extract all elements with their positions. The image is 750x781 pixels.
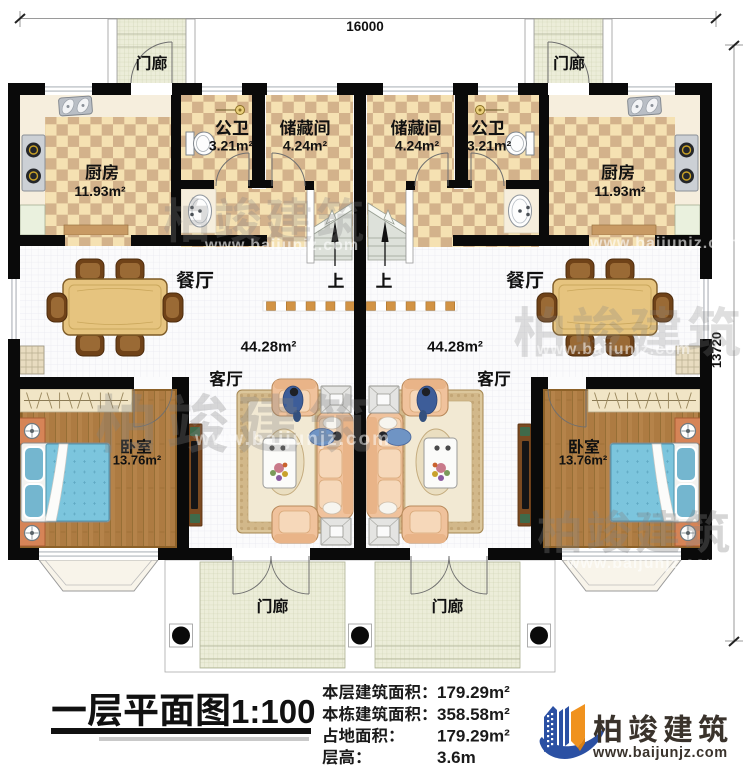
- svg-text:179.29m²: 179.29m²: [437, 683, 510, 702]
- svg-text:www.baijunjz.com: www.baijunjz.com: [589, 229, 744, 253]
- svg-text:www.baijunjz.com: www.baijunjz.com: [536, 335, 691, 359]
- svg-text:厨房: 厨房: [85, 159, 119, 184]
- svg-text:44.28m²: 44.28m²: [427, 339, 483, 356]
- svg-text:www.baijunjz.com: www.baijunjz.com: [194, 424, 391, 451]
- svg-text:本栋建筑面积：: 本栋建筑面积：: [322, 701, 438, 725]
- svg-text:www.baijunjz.com: www.baijunjz.com: [566, 549, 721, 573]
- svg-text:一层平面图1:100: 一层平面图1:100: [51, 682, 315, 734]
- svg-text:3.21m²: 3.21m²: [467, 138, 512, 154]
- svg-text:储藏间: 储藏间: [280, 114, 331, 139]
- svg-text:13.76m²: 13.76m²: [559, 453, 608, 468]
- svg-text:门廊: 门廊: [135, 50, 167, 74]
- svg-text:4.24m²: 4.24m²: [395, 138, 440, 154]
- svg-text:餐厅: 餐厅: [176, 266, 214, 293]
- svg-text:11.93m²: 11.93m²: [594, 183, 646, 199]
- svg-text:4.24m²: 4.24m²: [283, 138, 328, 154]
- svg-text:客厅: 客厅: [477, 365, 511, 390]
- svg-text:门廊: 门廊: [256, 593, 288, 617]
- svg-text:16000: 16000: [346, 19, 384, 34]
- svg-text:44.28m²: 44.28m²: [241, 339, 297, 356]
- svg-text:柏竣建筑: 柏竣建筑: [95, 375, 379, 466]
- svg-text:柏竣建筑: 柏竣建筑: [593, 705, 733, 749]
- svg-text:层高：: 层高：: [322, 744, 372, 768]
- svg-text:公卫: 公卫: [471, 114, 505, 139]
- svg-text:11.93m²: 11.93m²: [74, 183, 126, 199]
- svg-text:3.21m²: 3.21m²: [209, 138, 254, 154]
- svg-text:门廊: 门廊: [431, 593, 463, 617]
- svg-text:179.29m²: 179.29m²: [437, 727, 510, 746]
- svg-text:厨房: 厨房: [601, 159, 635, 184]
- svg-text:3.6m: 3.6m: [437, 748, 476, 767]
- svg-text:门廊: 门廊: [553, 50, 585, 74]
- svg-text:公卫: 公卫: [215, 114, 249, 139]
- svg-text:www.baijunjz.com: www.baijunjz.com: [592, 745, 728, 761]
- svg-text:占地面积：: 占地面积：: [322, 723, 405, 747]
- svg-text:上: 上: [376, 267, 393, 292]
- svg-text:358.58m²: 358.58m²: [437, 705, 510, 724]
- svg-text:上: 上: [328, 267, 345, 292]
- svg-text:储藏间: 储藏间: [391, 114, 442, 139]
- svg-text:www.baijunjz.com: www.baijunjz.com: [204, 231, 359, 255]
- svg-text:本层建筑面积：: 本层建筑面积：: [322, 679, 438, 703]
